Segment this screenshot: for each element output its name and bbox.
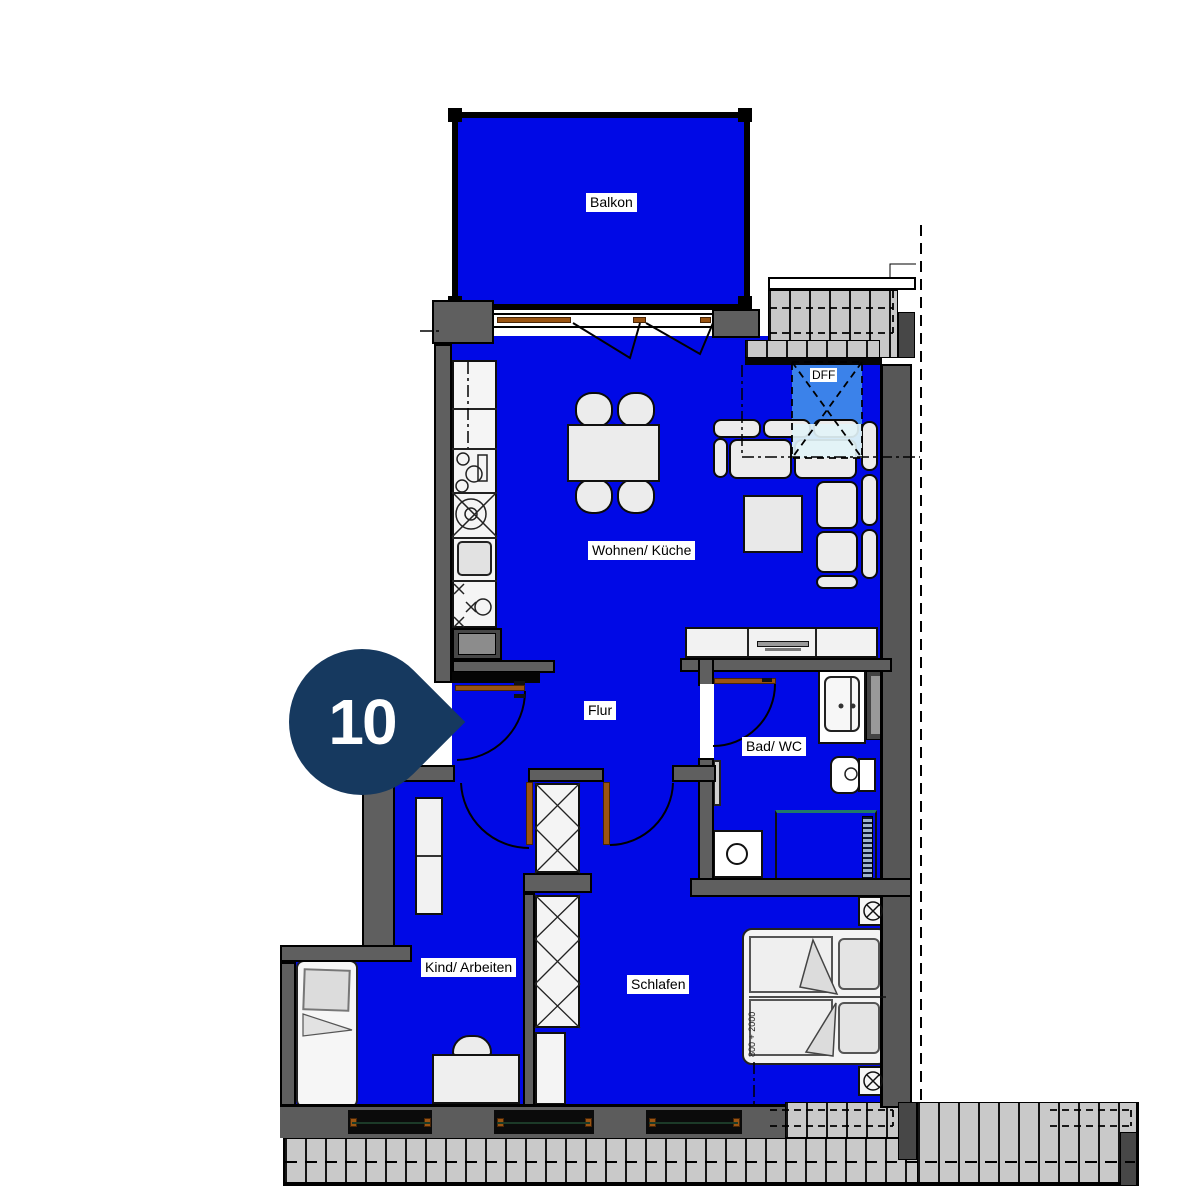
room-label-wohnen-kueche: Wohnen/ Küche — [588, 541, 695, 560]
window-handle — [733, 1118, 740, 1127]
wall — [880, 364, 912, 1108]
wall — [452, 672, 540, 683]
window-slot — [646, 1110, 742, 1134]
sofa-back-cushion — [713, 419, 761, 438]
mattress — [749, 936, 833, 993]
sofa-seat-cushion — [816, 531, 858, 573]
sofa-seat-cushion — [729, 439, 792, 479]
sofa-back-cushion — [861, 529, 878, 579]
kitchen-cabinet-divider — [452, 408, 497, 410]
kitchen-end-unit-top — [458, 633, 496, 655]
cabinet — [535, 1032, 566, 1105]
wall — [523, 893, 535, 1108]
wall — [672, 765, 716, 782]
tv-symbol — [757, 641, 809, 647]
balcony-corner-post — [448, 108, 462, 122]
shower-drain — [862, 816, 873, 880]
roof-window-projection — [792, 424, 862, 458]
wardrobe — [535, 783, 580, 873]
washbasin — [824, 676, 860, 732]
roof-thin-line — [890, 264, 916, 278]
toilet-tank — [858, 758, 876, 792]
sofa-back-cushion — [861, 474, 878, 526]
wall — [898, 312, 915, 358]
single-bed-pillow — [302, 968, 350, 1012]
bed-dimension-label: 800 + 2000 — [747, 995, 757, 1057]
wall — [280, 962, 296, 1108]
roof-hatch-band — [283, 1138, 919, 1186]
dining-chair — [575, 478, 613, 514]
window-slot — [494, 1110, 594, 1134]
balcony-door-frame — [700, 317, 711, 323]
wall — [434, 344, 452, 683]
unit-number: 10 — [289, 649, 435, 795]
sofa-seat-cushion — [816, 481, 858, 529]
sofa-armrest — [713, 438, 728, 478]
shelf-divider — [417, 855, 441, 857]
washing-machine-drum — [726, 843, 748, 865]
room-label-dff: DFF — [810, 368, 837, 382]
window-handle — [350, 1118, 357, 1127]
balcony-door-sill — [494, 326, 712, 328]
dishwasher — [457, 541, 492, 576]
wall — [362, 778, 395, 950]
mattress — [749, 999, 833, 1056]
bath-door-leaf — [714, 678, 776, 684]
door-opening — [700, 684, 714, 758]
window-handle — [424, 1118, 431, 1127]
roof-edge-box — [768, 277, 916, 290]
sideboard-divider — [747, 629, 749, 656]
balcony-corner-post — [738, 296, 752, 310]
kitchen-cabinet-divider — [452, 448, 497, 450]
entry-door-leaf — [455, 685, 525, 691]
sofa-back-cushion — [861, 421, 878, 471]
dining-chair — [617, 392, 655, 428]
window-slot — [348, 1110, 432, 1134]
sofa-armrest — [816, 575, 858, 589]
window-handle — [585, 1118, 592, 1127]
wall — [712, 309, 760, 338]
bed-pillow — [838, 938, 880, 990]
wall — [523, 873, 592, 893]
window-handle — [497, 1118, 504, 1127]
wall — [1120, 1132, 1137, 1186]
wall — [280, 945, 412, 962]
kitchen-counter — [452, 360, 497, 628]
wall — [690, 878, 912, 897]
wall — [898, 1102, 917, 1160]
child-room-door-leaf — [526, 782, 533, 845]
wall — [698, 658, 714, 686]
floorplan: Balkon Wohnen/ Küche Flur Bad/ WC Kind/ … — [0, 0, 1200, 1200]
dining-chair — [575, 392, 613, 428]
washbasin-divider — [850, 678, 852, 730]
room-label-kind-arbeiten: Kind/ Arbeiten — [421, 958, 516, 977]
wardrobe — [535, 895, 580, 1028]
toilet-bowl — [830, 756, 860, 794]
wall — [745, 358, 882, 365]
desk — [432, 1054, 520, 1104]
room-label-flur: Flur — [584, 701, 616, 720]
bed-pillow — [838, 1002, 880, 1054]
window-handle — [649, 1118, 656, 1127]
wall — [432, 300, 494, 344]
sideboard-divider — [815, 629, 817, 656]
unit-marker-pin[interactable]: 10 — [259, 619, 465, 825]
wall — [528, 768, 604, 782]
bedroom-door-leaf — [603, 782, 610, 845]
dining-table — [567, 424, 660, 482]
room-label-schlafen: Schlafen — [627, 975, 689, 994]
balcony-door-frame — [497, 317, 571, 323]
balcony-corner-post — [738, 108, 752, 122]
roof-hatch — [745, 340, 880, 358]
tv-symbol-base — [765, 648, 801, 651]
kitchen-cabinet-divider — [452, 580, 497, 582]
balcony-door-frame — [633, 317, 646, 323]
kitchen-cabinet-divider — [452, 537, 497, 539]
room-label-bad-wc: Bad/ WC — [742, 737, 806, 756]
kitchen-cabinet-divider — [452, 492, 497, 494]
coffee-table — [743, 495, 803, 553]
room-label-balkon: Balkon — [586, 193, 637, 212]
roof-hatch-band — [917, 1102, 1139, 1186]
balcony-door-sill — [494, 313, 712, 315]
dining-chair — [617, 478, 655, 514]
